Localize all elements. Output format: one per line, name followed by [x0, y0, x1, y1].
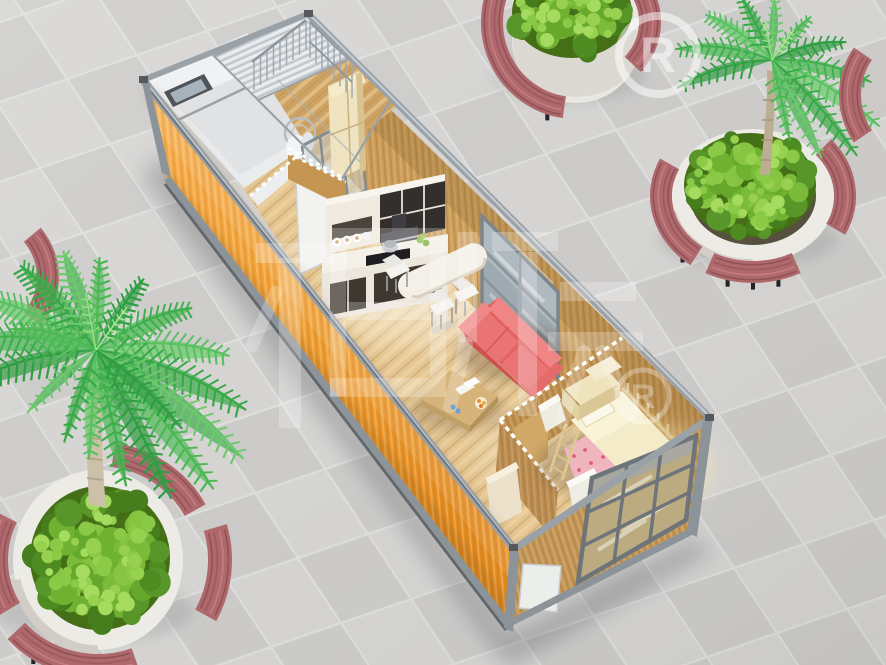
svg-text:R: R	[631, 378, 656, 416]
svg-text:R: R	[640, 27, 676, 83]
